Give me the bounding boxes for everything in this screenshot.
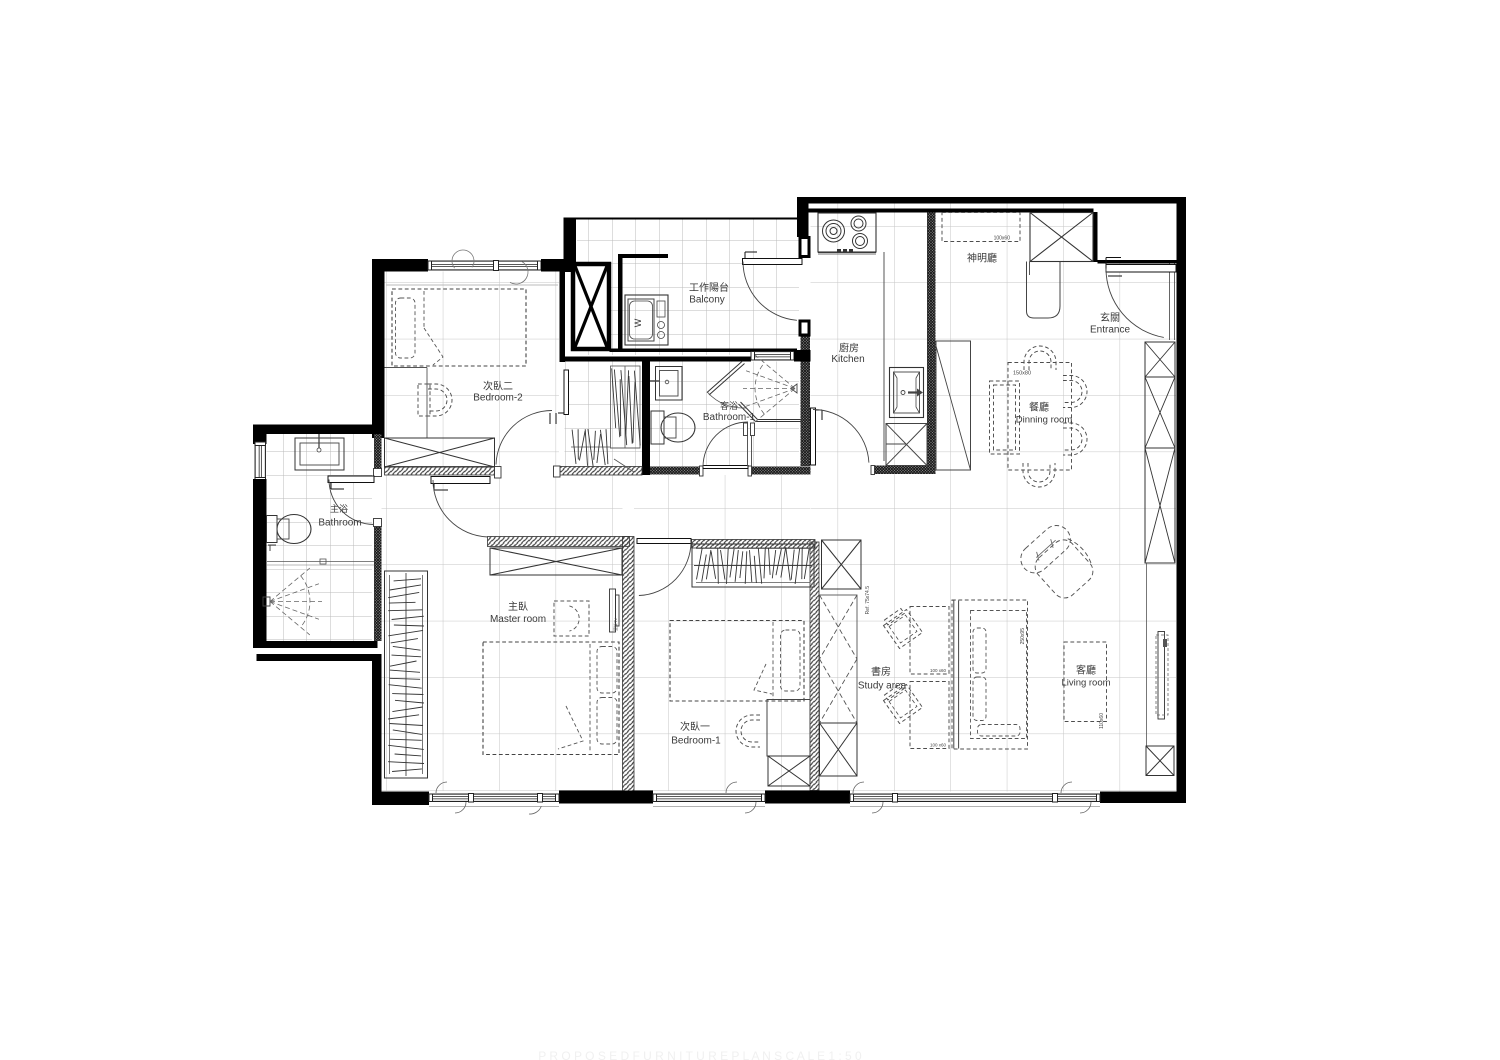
svg-text:150x80: 150x80 [1013, 371, 1031, 377]
svg-text:110x60: 110x60 [1099, 713, 1105, 729]
svg-text:Ref. 75x74.5: Ref. 75x74.5 [865, 586, 871, 615]
svg-text:Entrance: Entrance [1090, 325, 1130, 336]
svg-text:100x60: 100x60 [994, 236, 1011, 242]
svg-text:Bathroom: Bathroom [318, 518, 361, 529]
svg-text:工作陽台: 工作陽台 [689, 281, 729, 294]
svg-text:Bathroom-1: Bathroom-1 [703, 412, 756, 423]
svg-text:Study area: Study area [858, 681, 907, 692]
svg-text:主浴: 主浴 [330, 503, 348, 514]
svg-text:次臥二: 次臥二 [483, 380, 513, 393]
svg-text:Bedroom-1: Bedroom-1 [671, 736, 721, 747]
svg-text:書房: 書房 [871, 665, 891, 678]
svg-text:次臥一: 次臥一 [680, 720, 710, 733]
svg-text:餐廳: 餐廳 [1029, 401, 1049, 414]
svg-text:100 x60: 100 x60 [930, 668, 947, 673]
svg-text:主臥: 主臥 [508, 601, 528, 613]
svg-text:W: W [633, 318, 643, 327]
svg-text:壁掛TV: 壁掛TV [612, 618, 618, 631]
svg-text:客浴: 客浴 [720, 400, 738, 411]
svg-text:Living room: Living room [1061, 678, 1110, 689]
svg-text:250x95: 250x95 [1020, 628, 1026, 645]
svg-text:客廳: 客廳 [1076, 664, 1096, 677]
svg-text:神明廳: 神明廳 [967, 252, 997, 265]
svg-text:P R O P O S E D F U R N I T: P R O P O S E D F U R N I T U R E P L A … [538, 1049, 862, 1060]
svg-text:廚房: 廚房 [839, 342, 859, 355]
svg-text:Master room: Master room [490, 614, 546, 625]
svg-text:玄關: 玄關 [1100, 311, 1120, 324]
svg-text:100 x60: 100 x60 [930, 743, 947, 748]
svg-text:Dinning room: Dinning room [1016, 415, 1073, 426]
svg-text:Kitchen: Kitchen [831, 354, 864, 365]
svg-text:Bedroom-2: Bedroom-2 [473, 393, 523, 404]
svg-text:Balcony: Balcony [689, 295, 725, 306]
